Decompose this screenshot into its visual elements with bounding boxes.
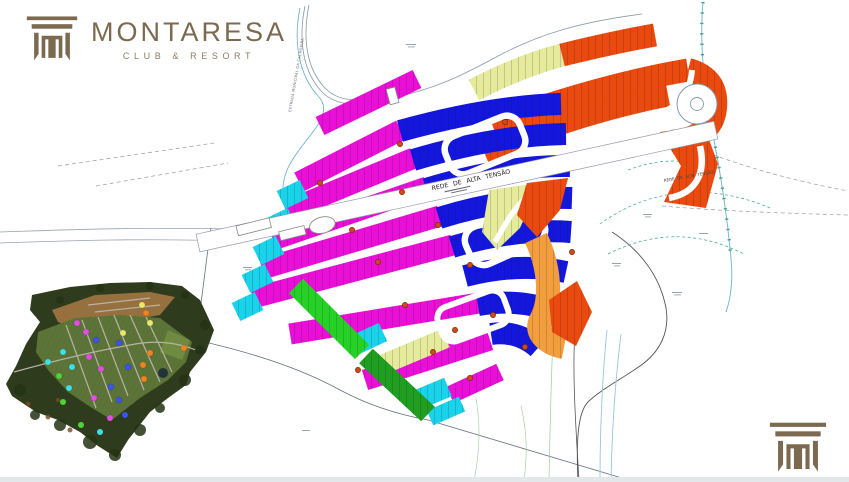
brand-mark-bottom-right: [769, 422, 827, 476]
lot-rows-cyan-shape: [281, 189, 304, 200]
road-label: ESTRADA MUNICIPAL DA CACHOEIRA: [288, 38, 305, 113]
master-plan-map: REDE DE ALTA TENSÃO REDE DE ALTA TENSÃO …: [0, 0, 849, 482]
inset-block-dot: [60, 399, 66, 405]
inset-block-dot: [78, 422, 84, 428]
inset-block-dot: [45, 359, 51, 365]
inset-block-dot: [181, 345, 187, 351]
block-marker: [399, 189, 404, 194]
inset-block-dot: [141, 376, 147, 382]
survey-lines-shape: [474, 398, 479, 481]
inset-trees-shape: [146, 282, 154, 290]
survey-lines-shape: [672, 292, 682, 293]
inset-block-dot: [139, 302, 145, 308]
brand-mark-icon: [26, 16, 78, 64]
brand-name: MONTARESA: [91, 19, 287, 46]
inset-block-dot: [83, 329, 89, 335]
roundabout-shape: [691, 98, 704, 111]
block-marker: [435, 222, 440, 227]
lot-rows-cyan-shape: [246, 273, 269, 284]
block-marker: [375, 259, 380, 264]
inset-block-dot: [93, 337, 99, 343]
inset-lake: [158, 368, 168, 378]
block-marker: [490, 312, 495, 317]
survey-lines-shape: [662, 206, 848, 215]
slide-canvas: REDE DE ALTA TENSÃO REDE DE ALTA TENSÃO …: [0, 0, 849, 482]
inset-trees-shape: [181, 291, 189, 299]
block-marker: [452, 327, 457, 332]
block-marker: [467, 262, 472, 267]
survey-lines-shape: [611, 334, 621, 481]
block-marker: [397, 141, 402, 146]
survey-lines-shape: [614, 266, 620, 267]
block-marker: [317, 180, 322, 185]
inset-block-dot: [147, 320, 153, 326]
survey-lines-shape: [302, 430, 310, 431]
survey-lines-shape: [643, 214, 652, 215]
survey-lines-shape: [699, 233, 708, 234]
inset-block-dot: [56, 373, 62, 379]
inset-trees-shape: [109, 449, 121, 461]
inset-block-dot: [98, 366, 104, 372]
inset-trees-shape: [54, 419, 66, 431]
inset-trees-shape: [56, 296, 64, 304]
inset-block-dot: [125, 364, 131, 370]
inset-block-dot: [86, 354, 92, 360]
brand-logo: MONTARESA CLUB & RESORT: [26, 16, 287, 64]
inset-block-dot: [147, 350, 153, 356]
inset-block-dot: [60, 349, 66, 355]
inset-clearings-shape: [68, 428, 73, 433]
aerial-inset-map: [6, 282, 214, 461]
inset-trees-shape: [14, 384, 26, 396]
block-marker: [569, 249, 574, 254]
inset-block-dot: [91, 395, 97, 401]
survey-lines-shape: [406, 44, 416, 45]
inset-block-dot: [143, 310, 149, 316]
inset-block-dot: [107, 415, 113, 421]
inset-trees-shape: [200, 320, 210, 330]
lot-rows-cyan-shape: [430, 404, 462, 418]
inset-clearings-shape: [56, 398, 60, 402]
brand-tagline: CLUB & RESORT: [91, 51, 287, 61]
inset-block-dot: [97, 429, 103, 435]
block-marker: [430, 349, 435, 354]
inset-block-dot: [122, 412, 128, 418]
block-marker: [467, 375, 472, 380]
survey-lines-shape: [577, 232, 667, 481]
block-marker: [402, 302, 407, 307]
inset-trees-shape: [96, 284, 104, 292]
survey-lines-shape: [645, 217, 651, 218]
block-marker: [349, 227, 354, 232]
inset-trees-shape: [155, 403, 165, 413]
survey-lines-shape: [408, 47, 415, 48]
block-marker: [522, 344, 527, 349]
survey-lines-shape: [600, 330, 607, 481]
survey-lines-shape: [549, 338, 553, 481]
roundabout: [677, 84, 717, 124]
lot-rows-north-shape: [562, 35, 655, 55]
inset-block-dot: [69, 364, 75, 370]
inset-block-dot: [116, 397, 122, 403]
inset-trees-shape: [83, 435, 97, 449]
block-marker: [355, 367, 360, 372]
inset-block-dot: [120, 330, 126, 336]
inset-block-dot: [108, 384, 114, 390]
block-marker: [502, 119, 507, 124]
inset-block-dot: [74, 320, 80, 326]
inset-clearings-shape: [46, 415, 51, 420]
inset-block-dot: [116, 340, 122, 346]
inset-block-dot: [140, 362, 146, 368]
bottom-edge-strip: [0, 477, 849, 482]
survey-lines-shape: [521, 406, 526, 481]
survey-lines-shape: [306, 5, 392, 100]
lot-rows-cyan-shape: [257, 245, 280, 256]
survey-lines-shape: [574, 332, 579, 481]
inset-trees-shape: [179, 374, 191, 386]
inset-trees-shape: [195, 345, 205, 355]
survey-lines-shape: [243, 267, 252, 268]
lot-rows-north-shape: [474, 55, 562, 90]
inset-block-dot: [66, 385, 72, 391]
lot-rows-central-shape: [450, 372, 500, 395]
inset-clearings-shape: [26, 402, 31, 407]
inset-trees-shape: [134, 424, 146, 436]
survey-lines-shape: [608, 237, 744, 254]
survey-lines-shape: [612, 263, 621, 264]
survey-lines-shape: [674, 295, 681, 296]
lot-rows-cyan-shape: [236, 301, 259, 312]
survey-lines-shape: [0, 228, 238, 232]
survey-lines-shape: [245, 270, 251, 271]
brand-text: MONTARESA CLUB & RESORT: [91, 19, 287, 61]
survey-lines-shape: [96, 163, 228, 186]
inset-trees-shape: [30, 410, 40, 420]
survey-lines-shape: [58, 143, 214, 166]
